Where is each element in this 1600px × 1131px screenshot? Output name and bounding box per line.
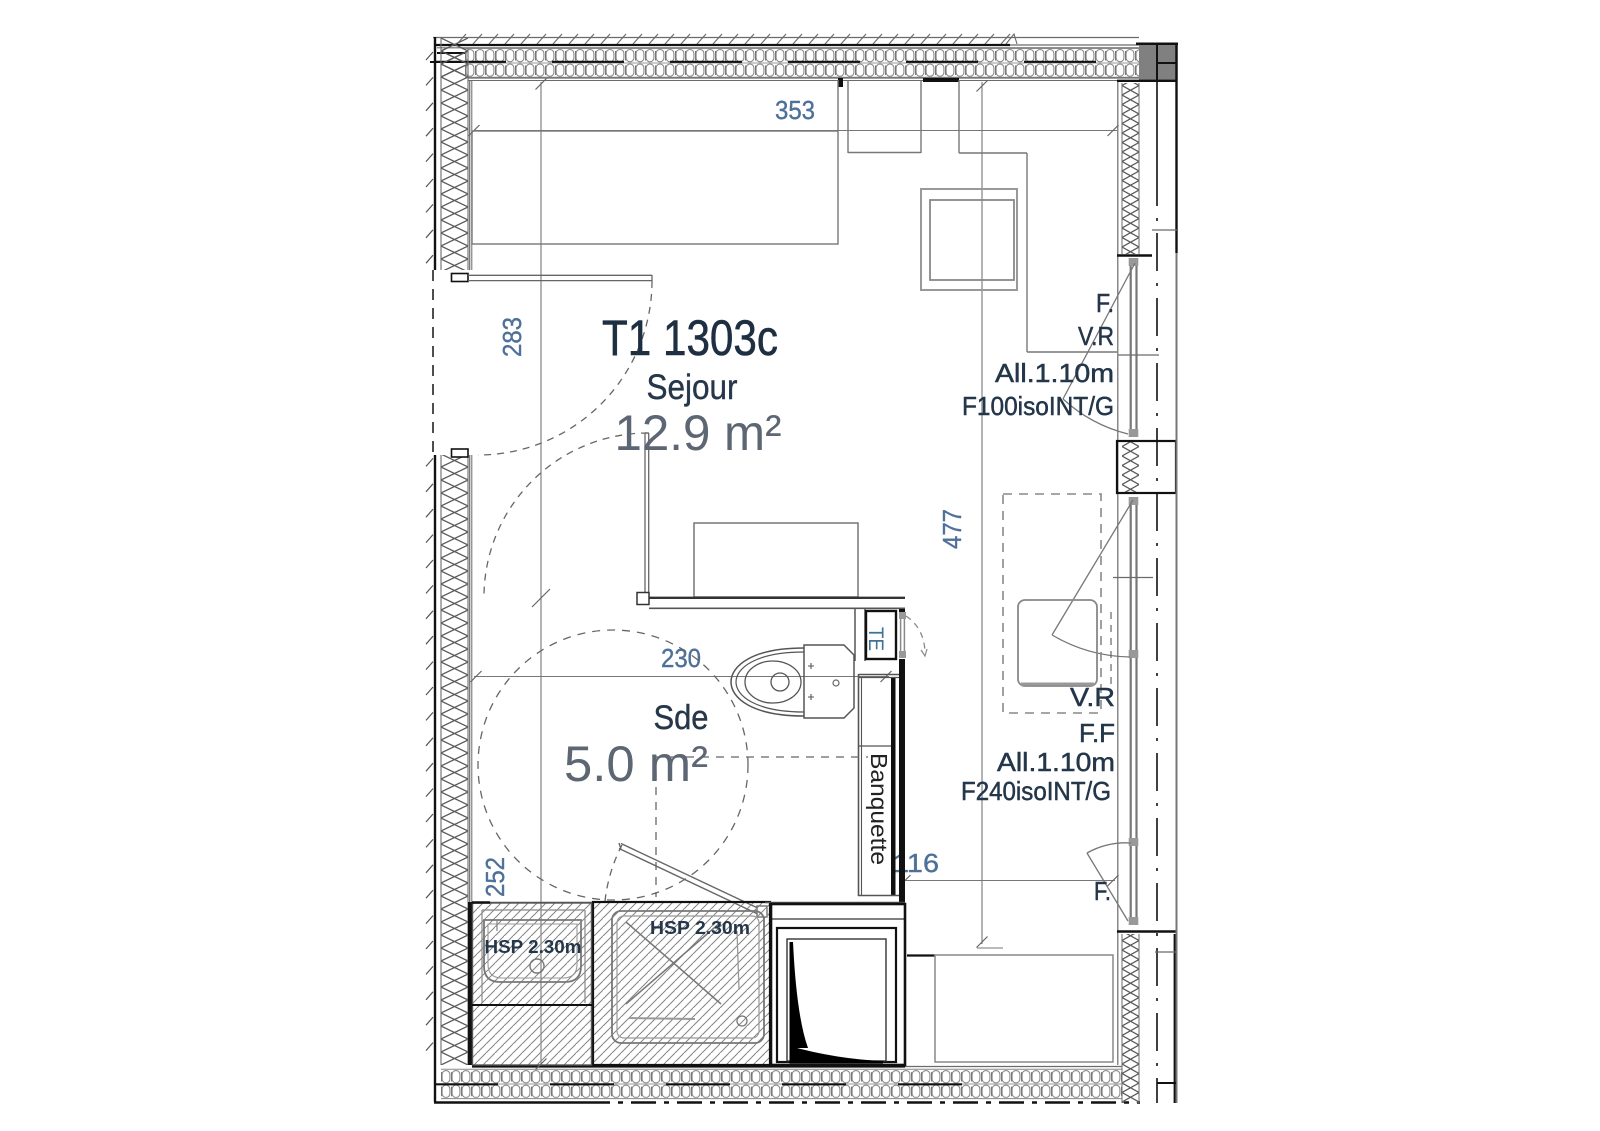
svg-text:F240isoINT/G: F240isoINT/G [961, 776, 1111, 806]
svg-text:F.: F. [1096, 288, 1114, 318]
svg-text:Sejour: Sejour [647, 368, 738, 407]
svg-text:F100isoINT/G: F100isoINT/G [962, 391, 1114, 421]
svg-text:Sde: Sde [654, 699, 709, 737]
svg-text:F.: F. [1094, 876, 1111, 906]
svg-text:283: 283 [497, 317, 527, 357]
svg-text:HSP 2.30m: HSP 2.30m [650, 918, 750, 938]
svg-text:477: 477 [937, 509, 967, 549]
svg-text:353: 353 [775, 95, 815, 125]
svg-text:Banquette: Banquette [866, 753, 892, 865]
svg-text:All.1.10m: All.1.10m [997, 747, 1115, 777]
svg-text:252: 252 [480, 857, 510, 897]
svg-text:5.0 m²: 5.0 m² [564, 736, 708, 792]
svg-text:T1 1303c: T1 1303c [602, 310, 778, 366]
svg-text:All.1.10m: All.1.10m [995, 358, 1114, 388]
svg-text:HSP 2.30m: HSP 2.30m [485, 937, 582, 957]
svg-text:TE: TE [864, 627, 887, 651]
svg-text:V.R: V.R [1070, 682, 1115, 712]
svg-text:12.9 m²: 12.9 m² [615, 405, 782, 461]
svg-text:F.F: F.F [1079, 718, 1115, 748]
svg-text:V.R: V.R [1078, 321, 1114, 351]
